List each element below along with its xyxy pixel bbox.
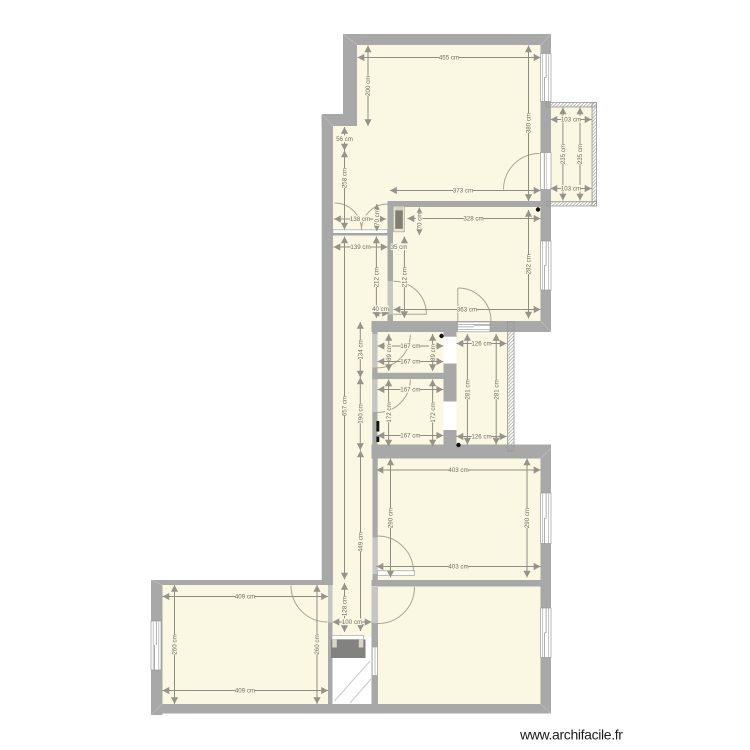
svg-text:40 cm: 40 cm [372, 306, 389, 313]
svg-text:281 cm: 281 cm [465, 379, 472, 399]
svg-text:290 cm: 290 cm [524, 508, 531, 528]
svg-text:260 cm: 260 cm [172, 634, 179, 654]
svg-text:281 cm: 281 cm [493, 379, 500, 399]
svg-text:403 cm: 403 cm [448, 564, 468, 571]
svg-text:138 cm: 138 cm [350, 216, 370, 223]
svg-text:89 cm: 89 cm [430, 344, 437, 361]
svg-text:35 cm: 35 cm [391, 244, 408, 251]
svg-text:167 cm: 167 cm [400, 343, 420, 350]
svg-text:212 cm: 212 cm [374, 267, 381, 287]
svg-text:328 cm: 328 cm [463, 216, 483, 223]
svg-text:212 cm: 212 cm [402, 267, 409, 287]
svg-text:89 cm: 89 cm [386, 344, 393, 361]
svg-text:190 cm: 190 cm [358, 403, 365, 423]
svg-text:172 cm: 172 cm [430, 402, 437, 422]
svg-text:128 cm: 128 cm [342, 596, 349, 616]
svg-text:126 cm: 126 cm [471, 434, 491, 441]
svg-text:235 cm: 235 cm [560, 144, 567, 164]
svg-text:235 cm: 235 cm [577, 144, 584, 164]
svg-text:167 cm: 167 cm [400, 433, 420, 440]
svg-text:258 cm: 258 cm [342, 168, 349, 188]
svg-text:70 cm: 70 cm [374, 209, 381, 226]
svg-text:56 cm: 56 cm [336, 136, 353, 143]
svg-text:126 cm: 126 cm [471, 341, 491, 348]
svg-text:260 cm: 260 cm [314, 634, 321, 654]
svg-text:409 cm: 409 cm [235, 688, 255, 695]
svg-text:103 cm: 103 cm [561, 117, 581, 124]
svg-text:200 cm: 200 cm [365, 76, 372, 96]
svg-text:290 cm: 290 cm [388, 508, 395, 528]
svg-text:167 cm: 167 cm [400, 387, 420, 394]
svg-text:657 cm: 657 cm [342, 396, 349, 416]
svg-text:167 cm: 167 cm [400, 359, 420, 366]
svg-text:www.archifacile.fr: www.archifacile.fr [519, 727, 623, 743]
svg-text:134 cm: 134 cm [358, 339, 365, 359]
svg-text:380 cm: 380 cm [526, 113, 533, 133]
svg-text:403 cm: 403 cm [448, 467, 468, 474]
svg-text:139 cm: 139 cm [350, 244, 370, 251]
svg-text:409 cm: 409 cm [235, 594, 255, 601]
svg-text:172 cm: 172 cm [386, 402, 393, 422]
svg-text:363 cm: 363 cm [457, 307, 477, 314]
svg-text:103 cm: 103 cm [561, 186, 581, 193]
svg-text:70 cm: 70 cm [417, 213, 424, 230]
svg-text:455 cm: 455 cm [439, 55, 459, 62]
svg-text:373 cm: 373 cm [453, 188, 473, 195]
svg-text:282 cm: 282 cm [526, 254, 533, 274]
svg-text:449 cm: 449 cm [358, 532, 365, 552]
svg-text:100 cm: 100 cm [342, 619, 362, 626]
